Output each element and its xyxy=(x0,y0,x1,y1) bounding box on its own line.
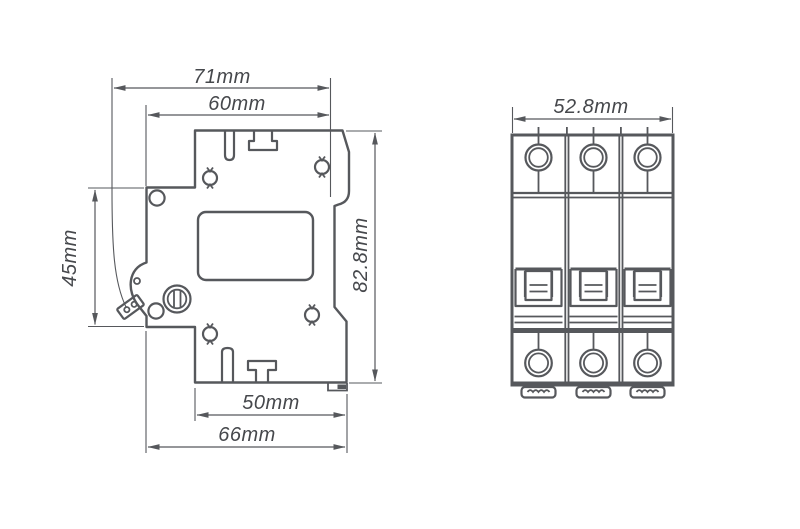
mounting-foot xyxy=(522,387,556,398)
terminal-screw-bottom xyxy=(525,333,552,376)
pole-module xyxy=(515,137,563,398)
dimension-label: 50mm xyxy=(242,392,300,414)
rivet xyxy=(203,168,217,189)
lever-travel-arc xyxy=(112,190,126,307)
bottom-terminal-slot xyxy=(248,361,276,382)
toggle-switch xyxy=(516,269,562,306)
lever-handle xyxy=(117,295,145,320)
terminal-screw-top xyxy=(581,137,607,193)
rivet xyxy=(203,324,217,345)
terminal-screw-bottom xyxy=(580,333,607,376)
dimension-label: 71mm xyxy=(193,66,251,88)
rivet xyxy=(305,305,319,326)
dimension-height-total: 82.8mm xyxy=(346,131,382,383)
dimension-label: 52.8mm xyxy=(553,96,628,118)
mounting-foot xyxy=(577,387,611,398)
technical-drawing: 71mm 60mm 45mm 82.8mm 50mm xyxy=(0,0,800,529)
lever-pivot xyxy=(134,278,140,284)
rating-label-lines xyxy=(515,317,563,323)
rating-label-lines xyxy=(570,317,618,323)
terminal-screw-bottom xyxy=(634,333,661,376)
latch-tab xyxy=(338,385,347,390)
dimension-width-top: 60mm xyxy=(146,93,329,186)
breaker-front-body xyxy=(512,135,673,384)
dimension-label: 66mm xyxy=(218,424,276,446)
side-view: 71mm 60mm 45mm 82.8mm 50mm xyxy=(59,66,382,453)
dimension-label: 60mm xyxy=(208,93,266,115)
section-dividers xyxy=(512,193,673,331)
terminal-screw-top xyxy=(526,137,552,193)
case-hole xyxy=(148,303,163,318)
din-rail-latch xyxy=(328,383,347,391)
bottom-vent-slot xyxy=(222,348,233,382)
toggle-switch xyxy=(571,269,617,306)
dimension-width-bottom-inner: 50mm xyxy=(195,388,345,421)
front-view: 52.8mm xyxy=(511,96,675,398)
dimension-label: 45mm xyxy=(59,229,81,287)
breaker-side-outline xyxy=(131,131,349,383)
toggle-switch xyxy=(625,269,671,306)
nameplate-recess xyxy=(198,212,313,280)
dimension-drawing-page: 71mm 60mm 45mm 82.8mm 50mm xyxy=(0,0,800,529)
top-terminal-slot xyxy=(249,131,277,150)
screw-inner xyxy=(168,290,187,309)
dimension-label: 82.8mm xyxy=(350,217,372,292)
dimension-front-width: 52.8mm xyxy=(513,96,673,133)
terminal-screw-top xyxy=(635,137,661,193)
calibration-screw xyxy=(164,286,191,313)
rating-label-lines xyxy=(624,317,672,323)
toggle-lever xyxy=(112,190,144,319)
mounting-foot xyxy=(631,387,665,398)
rivet xyxy=(315,157,329,178)
case-hole xyxy=(149,190,164,205)
lever-hole xyxy=(123,306,130,313)
pole-module xyxy=(570,137,618,398)
top-vent-slot xyxy=(225,131,234,160)
pole-module xyxy=(624,137,672,398)
